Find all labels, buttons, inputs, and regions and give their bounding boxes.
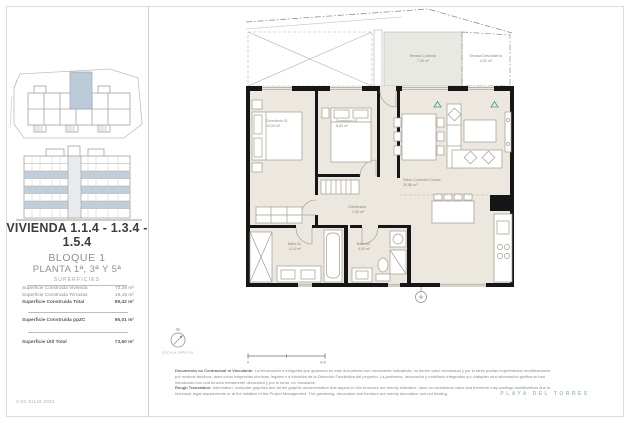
panel-divider	[148, 6, 149, 417]
svg-text:Terraza Descubierta 4,: Terraza Descubierta 4,31 m²	[469, 54, 502, 63]
svg-text:4 m: 4 m	[320, 361, 326, 365]
kitchen-counter	[494, 214, 512, 282]
left-panel: VIVIENDA 1.1.4 - 1.3.4 - 1.5.4 BLOQUE 1 …	[6, 6, 148, 417]
bath1-tub	[324, 230, 342, 282]
brochure-page: VIVIENDA 1.1.4 - 1.3.4 - 1.5.4 BLOQUE 1 …	[0, 0, 630, 423]
boundary-lines	[246, 9, 512, 33]
north-compass: N ESCALA GRÁFICA	[162, 327, 193, 355]
floors-label: PLANTA 1ª, 3ª Y 5ª	[6, 264, 148, 275]
separator	[28, 312, 128, 313]
elevation-key	[16, 144, 142, 224]
terraza-descubierta: Terraza Descubierta 4,31 m²	[462, 32, 510, 86]
version-label: V.03 JULIO 2022	[16, 399, 55, 404]
block-label: BLOQUE 1	[6, 252, 148, 264]
surfaces-table: Superficie Construida Vivienda73,26 m² S…	[22, 286, 134, 347]
separator	[28, 332, 128, 333]
svg-text:Baño 02 4,00 m²: Baño 02 4,00 m²	[357, 242, 371, 251]
party-wall	[374, 30, 382, 86]
disclaimer-es: Documento no Contractual ni Vinculante: …	[175, 368, 557, 386]
surface-row: Superficie Construida Terrazas16,16 m²	[22, 293, 134, 300]
svg-text:Baño 01 4,14 m²: Baño 01 4,14 m²	[288, 242, 302, 251]
surface-row-util: Superficie Útil Total73,60 m²	[22, 340, 134, 347]
floor-plan: Terraza Cubierta 7,08 m² Terraza Descubi…	[150, 0, 630, 423]
svg-text:N: N	[176, 327, 179, 332]
surfaces-heading: SUPERFICIES	[27, 277, 127, 286]
dorm1-wardrobe	[256, 207, 302, 223]
bath2-sink	[352, 268, 372, 282]
surface-row-ppzc: Superficie Construida ppZC95,01 m²	[22, 318, 134, 325]
radiator	[505, 112, 511, 152]
bath1-shower	[250, 232, 272, 282]
surface-row: Superficie Construida Vivienda73,26 m²	[22, 286, 134, 293]
scale-bar: 0 4 m	[247, 354, 326, 365]
surface-row-total: Superficie Construida Total89,42 m²	[22, 300, 134, 307]
drain-symbol	[416, 287, 427, 303]
svg-text:0: 0	[247, 361, 249, 365]
svg-text:ESCALA GRÁFICA: ESCALA GRÁFICA	[162, 351, 193, 355]
brand-logo: PLAYA DEL TORRES	[470, 391, 620, 397]
site-plan-key	[10, 66, 148, 144]
unit-title: VIVIENDA 1.1.4 - 1.3.4 - 1.5.4	[6, 222, 148, 249]
terraza-cubierta: Terraza Cubierta 7,08 m²	[384, 32, 462, 86]
highlighted-unit	[70, 72, 92, 109]
bath2-washer	[390, 231, 406, 274]
bath1-sink	[277, 266, 321, 282]
neighbour-area	[248, 32, 372, 86]
hall-closet	[321, 180, 359, 194]
